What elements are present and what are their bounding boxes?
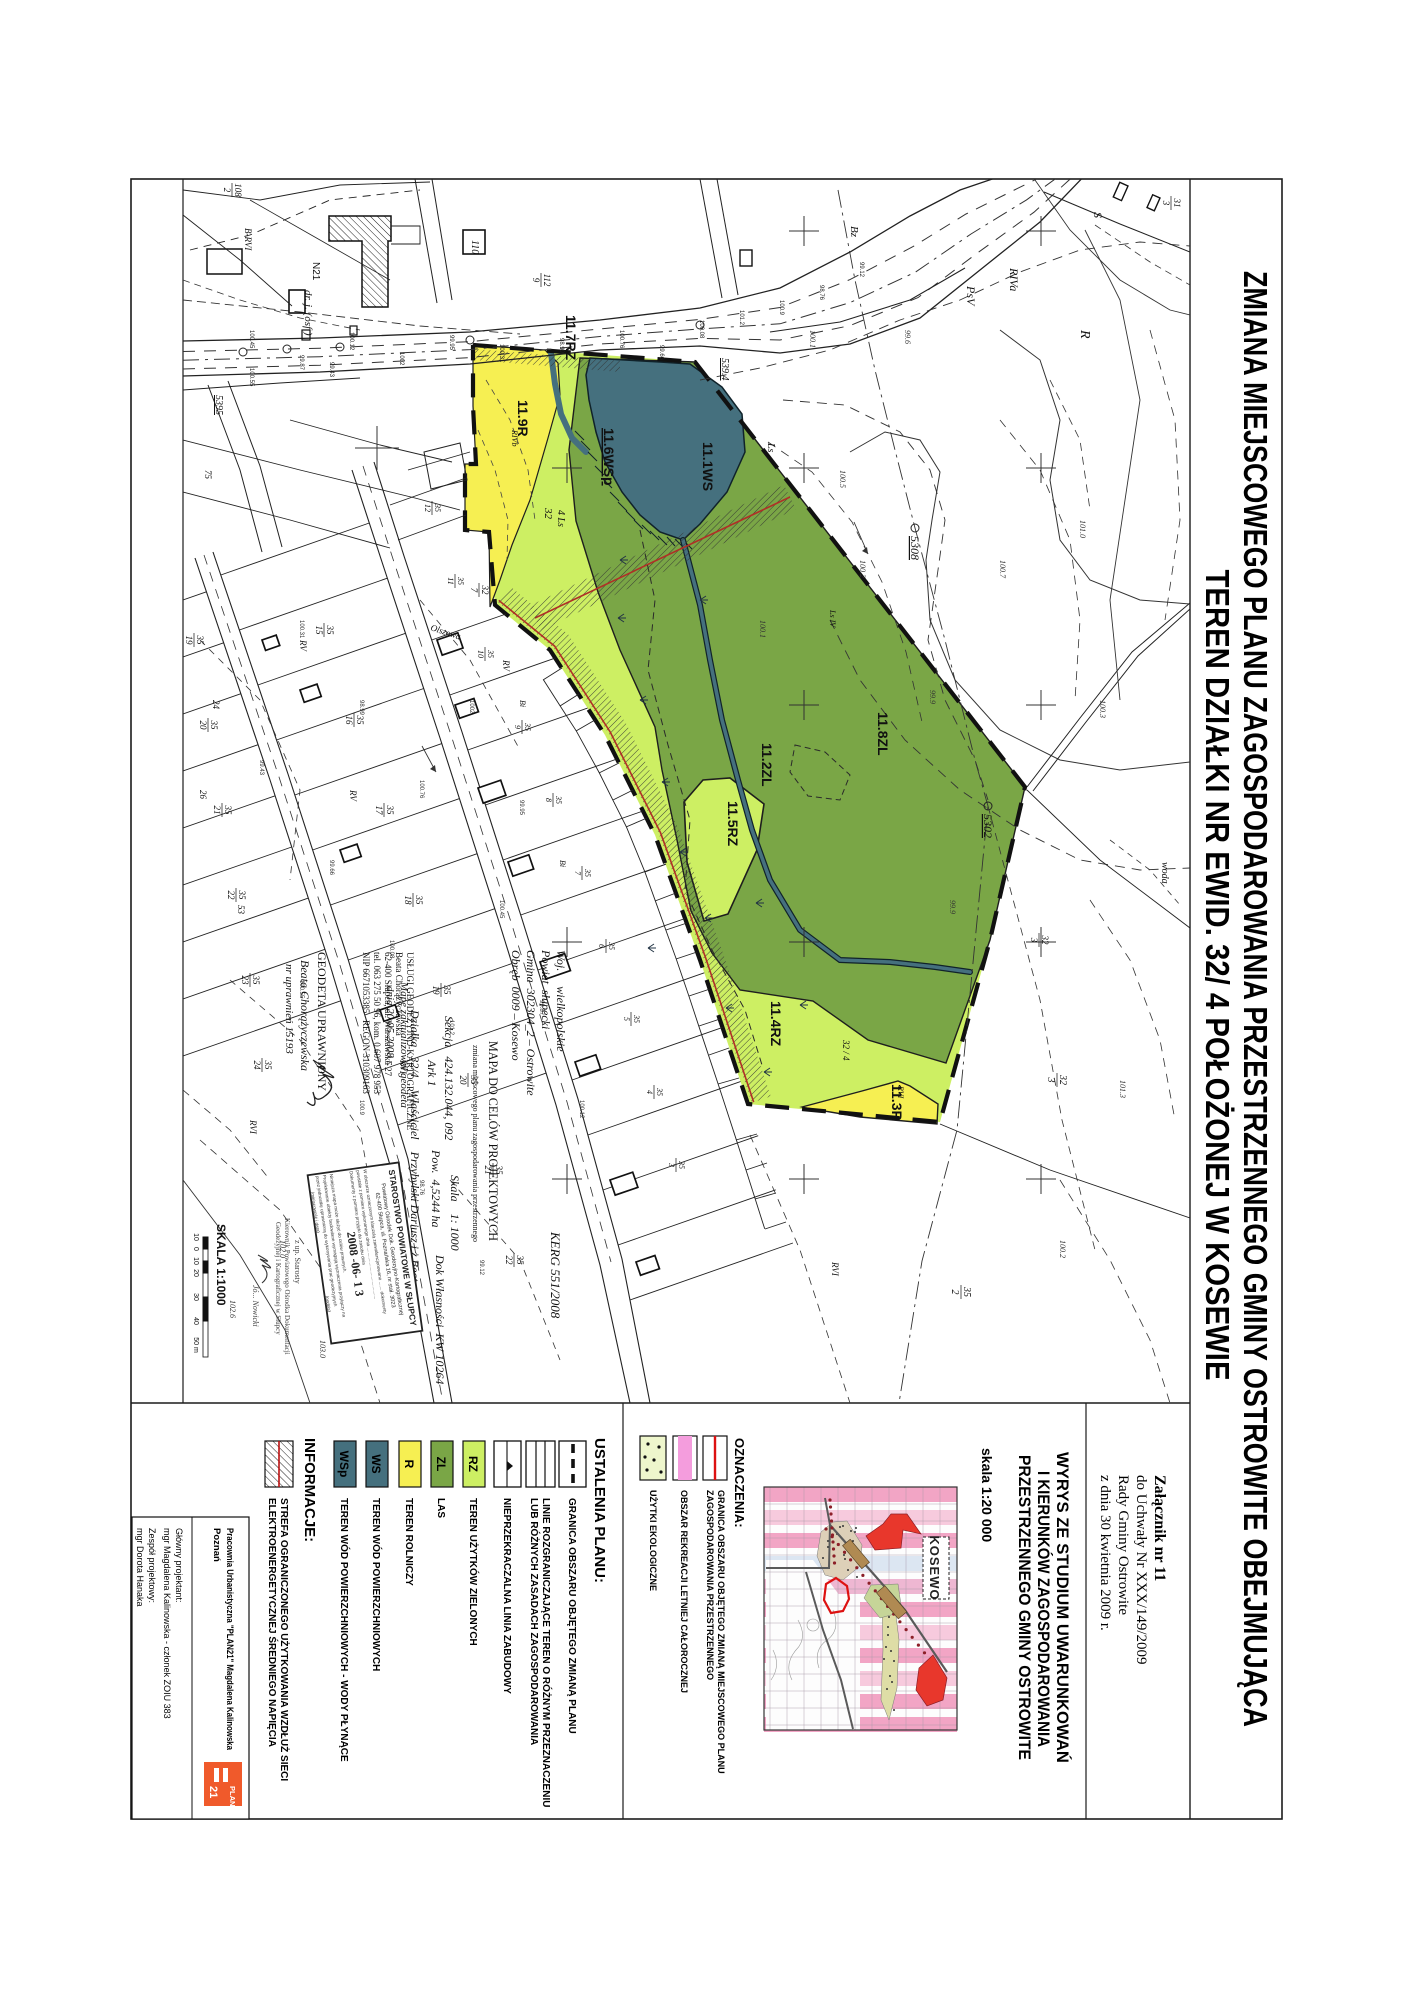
svg-text:100.08: 100.08 [698,320,704,339]
svg-text:USŁUGI GEODEZYJNO-KARTOGRAFICZ: USŁUGI GEODEZYJNO-KARTOGRAFICZNE [405,952,415,1131]
svg-text:TEREN DZIAŁKI NR EWID. 32/ 4 P: TEREN DZIAŁKI NR EWID. 32/ 4 POŁOŻONEJ W… [1199,570,1236,1381]
svg-text:I KIERUNKÓW ZAGOSPODAROWANIA: I KIERUNKÓW ZAGOSPODAROWANIA [1034,1471,1053,1747]
svg-text:LAS: LAS [435,1498,446,1518]
svg-text:9: 9 [513,725,522,729]
svg-text:11.7RZ: 11.7RZ [563,315,579,361]
svg-text:100.1: 100.1 [758,620,767,638]
svg-text:RIVa: RIVa [1007,267,1021,291]
svg-text:Dok Własności KW 10264: Dok Własności KW 10264 [433,1254,447,1384]
svg-text:N21: N21 [310,262,321,281]
svg-text:ZAGOSPODAROWANIA PRZESTRZENNEG: ZAGOSPODAROWANIA PRZESTRZENNEGO [705,1490,715,1680]
svg-text:100.9: 100.9 [358,1100,364,1116]
svg-text:tel. 063 275 50 96, kom. 0 607: tel. 063 275 50 96, kom. 0 607 978 953 [372,952,382,1094]
svg-text:SKALA 1:1000: SKALA 1:1000 [214,1224,228,1306]
svg-text:35: 35 [655,1087,664,1096]
svg-text:Pow. 4,5244 ha: Pow. 4,5244 ha [429,1149,443,1227]
svg-text:102.6: 102.6 [228,1300,237,1318]
svg-text:100.31: 100.31 [298,620,304,639]
svg-text:RV: RV [501,659,511,672]
svg-text:10: 10 [192,1257,199,1265]
svg-text:21: 21 [207,1786,219,1798]
svg-text:Główny projektant:: Główny projektant: [174,1528,184,1603]
svg-text:24: 24 [252,1061,262,1071]
svg-text:Załącznik nr 11: Załącznik nr 11 [1151,1475,1168,1581]
svg-text:Powiat słupecki: Powiat słupecki [539,949,553,1029]
svg-text:dr. j. (osf ): dr. j. (osf ) [302,290,314,336]
svg-text:ZMIANA MIEJSCOWEGO PLANU ZAGOS: ZMIANA MIEJSCOWEGO PLANU ZAGOSPODAROWANI… [1237,271,1274,1727]
svg-text:R: R [1077,329,1092,339]
svg-text:75: 75 [203,470,213,480]
svg-text:40: 40 [192,1317,199,1325]
svg-text:ZL: ZL [434,1457,448,1472]
svg-text:mgr Magdalena Kalinowska - czł: mgr Magdalena Kalinowska - członek ZOIU … [162,1528,172,1719]
svg-text:32: 32 [1040,935,1050,946]
svg-text:do Uchwały Nr XXX/149/2009: do Uchwały Nr XXX/149/2009 [1133,1475,1149,1665]
svg-text:S: S [1091,212,1105,218]
svg-text:1002: 1002 [468,700,474,714]
svg-text:20: 20 [458,1076,468,1086]
svg-text:5395: 5395 [213,395,224,415]
svg-text:11.1WS: 11.1WS [700,442,716,491]
svg-text:5302: 5302 [981,814,995,838]
svg-text:1002: 1002 [398,352,404,366]
svg-text:WYRYS ZE STUDIUM UWARUNKOWAŃ: WYRYS ZE STUDIUM UWARUNKOWAŃ [1053,1452,1072,1763]
svg-text:Zespół projektowy:: Zespół projektowy: [147,1528,157,1603]
svg-text:RVI: RVI [830,1261,840,1277]
svg-text:NIEPRZEKRACZALNA LINIA ZABUDOW: NIEPRZEKRACZALNA LINIA ZABUDOWY [501,1498,512,1694]
svg-text:3: 3 [1045,1077,1056,1083]
svg-text:zmiana miejscowego planu zagos: zmiana miejscowego planu zagospodarowani… [471,1045,481,1242]
svg-text:Sekcja 424.132.044, 092: Sekcja 424.132.044, 092 [442,1016,456,1140]
svg-text:100.9: 100.9 [778,300,784,316]
svg-text:Ark 1: Ark 1 [425,1059,439,1086]
svg-text:98.76: 98.76 [818,285,824,301]
svg-text:RZ: RZ [466,1456,480,1472]
svg-text:100.12: 100.12 [578,1100,584,1119]
svg-text:35: 35 [355,715,365,726]
svg-text:WSp: WSp [337,1451,351,1478]
svg-text:WS: WS [369,1454,383,1473]
svg-text:100.76: 100.76 [418,780,424,799]
svg-text:3: 3 [667,1162,676,1167]
svg-text:100.45: 100.45 [248,330,254,349]
svg-text:35: 35 [961,1286,972,1297]
svg-text:99.43: 99.43 [328,362,334,378]
svg-text:35: 35 [632,1014,641,1023]
svg-text:7: 7 [469,588,479,593]
svg-text:50 m: 50 m [192,1337,199,1353]
svg-text:Woj. wielkopolskie: Woj. wielkopolskie [554,950,568,1052]
svg-text:PsV: PsV [964,285,978,307]
svg-text:35: 35 [414,895,424,906]
svg-text:2: 2 [949,1290,960,1295]
svg-text:RIVb: RIVb [510,429,519,446]
svg-text:16: 16 [344,716,354,726]
svg-text:19: 19 [184,636,194,646]
svg-text:62-400 Słupca, ul. Warszawska: 62-400 Słupca, ul. Warszawska 27 [383,952,393,1077]
svg-text:3: 3 [1029,937,1039,943]
svg-text:100.7: 100.7 [998,560,1007,579]
svg-text:32: 32 [542,507,554,520]
svg-text:10: 10 [192,1233,199,1241]
svg-text:35: 35 [442,985,452,996]
svg-text:skala 1:20 000: skala 1:20 000 [979,1448,995,1542]
svg-text:0: 0 [192,1247,199,1251]
svg-text:Rady Gminy Ostrowite: Rady Gminy Ostrowite [1115,1475,1131,1615]
svg-text:100.45: 100.45 [498,900,504,919]
svg-text:99.9: 99.9 [928,690,937,704]
svg-text:Poznań: Poznań [211,1528,222,1562]
svg-text:99.95: 99.95 [518,800,524,816]
svg-text:11.5RZ: 11.5RZ [725,801,741,847]
svg-text:11.4RZ: 11.4RZ [768,1001,784,1047]
svg-text:TEREN ROLNICZY: TEREN ROLNICZY [403,1498,414,1586]
svg-text:100.76: 100.76 [618,330,624,349]
svg-text:99.9: 99.9 [948,900,957,914]
svg-text:2: 2 [222,188,232,193]
svg-text:99.43: 99.43 [258,760,264,776]
svg-text:18: 18 [403,896,413,906]
svg-text:101.2: 101.2 [738,310,744,326]
svg-text:OBSZAR REKREACJI LETNIEJ CAŁOR: OBSZAR REKREACJI LETNIEJ CAŁOROCZNEJ [679,1490,689,1693]
svg-text:15: 15 [314,626,324,636]
svg-text:z dnia 30 kwietnia 2009 r.: z dnia 30 kwietnia 2009 r. [1097,1475,1113,1631]
svg-text:KOSEWO: KOSEWO [927,1535,942,1600]
svg-text:z up. Starosty: z up. Starosty [293,1240,302,1284]
svg-text:35: 35 [251,975,261,986]
svg-text:Jó... Nowicki: Jó... Nowicki [251,1285,260,1327]
svg-text:Ls IV: Ls IV [828,609,837,628]
svg-text:99.66: 99.66 [658,345,664,361]
svg-text:99.6: 99.6 [903,330,912,344]
svg-text:mgr Dorota Hanaka: mgr Dorota Hanaka [135,1528,145,1607]
svg-text:23: 23 [240,976,250,986]
svg-text:35: 35 [325,625,335,636]
svg-text:53: 53 [236,905,246,915]
svg-text:101.3: 101.3 [1118,1080,1127,1098]
svg-text:17: 17 [374,806,384,816]
svg-text:99.12: 99.12 [478,1260,484,1276]
svg-text:101.0: 101.0 [1078,520,1087,538]
svg-text:35: 35 [433,503,442,512]
svg-text:11: 11 [446,577,455,584]
svg-text:RV: RV [348,789,358,802]
svg-text:11.2ZL: 11.2ZL [759,743,775,787]
svg-text:100.2: 100.2 [1058,1240,1067,1258]
svg-text:USTALENIA PLANU:: USTALENIA PLANU: [591,1438,608,1583]
svg-text:8: 8 [544,798,553,802]
svg-text:NIP 6671053385 REGON 3103091: NIP 6671053385 REGON 310309163 [361,952,371,1094]
svg-text:103.0: 103.0 [318,1340,327,1358]
svg-text:woda: woda [1159,862,1170,884]
svg-text:35: 35 [523,722,532,731]
svg-text:35: 35 [515,1255,525,1266]
svg-text:11.6WSp: 11.6WSp [601,428,617,486]
svg-text:Geodezyjnej i Kartograficznej: Geodezyjnej i Kartograficznej w Słupcy [274,1222,282,1335]
svg-text:100.55: 100.55 [248,368,254,387]
svg-text:19: 19 [431,986,441,996]
svg-text:3: 3 [1161,200,1171,206]
svg-text:21: 21 [212,806,222,815]
svg-text:Beata Chorążyczewska: Beata Chorążyczewska [394,952,404,1036]
svg-text:OZNACZENIA:: OZNACZENIA: [732,1438,747,1528]
svg-text:GRANICA OBSZARU OBJĘTEGO ZMIAN: GRANICA OBSZARU OBJĘTEGO ZMIANĄ MIEJSCOW… [716,1490,726,1774]
svg-text:9: 9 [531,278,541,283]
svg-text:35: 35 [195,635,205,646]
svg-text:100.31: 100.31 [498,344,504,363]
svg-text:RV: RV [298,639,308,652]
svg-text:99.95: 99.95 [448,335,454,351]
svg-text:98.99: 98.99 [358,700,364,716]
svg-text:Gmina 302304_2 – Ostrowite: Gmina 302304_2 – Ostrowite [524,950,538,1096]
svg-text:100.1: 100.1 [808,330,817,348]
svg-text:12: 12 [423,504,432,512]
svg-text:nr uprawnień 15193: nr uprawnień 15193 [283,964,295,1054]
svg-text:99.66: 99.66 [328,860,334,876]
svg-text:Obręb 0009 – Kosewo: Obręb 0009 – Kosewo [509,950,523,1061]
svg-text:99.12: 99.12 [858,262,864,278]
svg-text:5: 5 [622,1017,631,1021]
svg-text:B-RVI: B-RVI [243,228,253,251]
svg-text:Pracownia Urbanistyczna "PLAN2: Pracownia Urbanistyczna "PLAN21" Magdale… [224,1528,235,1751]
svg-text:11.8ZL: 11.8ZL [875,712,891,756]
svg-text:35: 35 [554,795,563,804]
svg-text:100.5: 100.5 [838,470,847,488]
svg-text:100.2: 100.2 [858,560,867,578]
svg-text:GRANICA OBSZARU OBJĘTEGO ZMIAN: GRANICA OBSZARU OBJĘTEGO ZMIANĄ PLANU [566,1498,577,1734]
svg-text:35: 35 [486,649,495,658]
svg-text:PLAN: PLAN [228,1786,237,1806]
svg-text:100.3: 100.3 [1098,700,1107,718]
svg-text:35: 35 [223,805,233,816]
svg-text:22: 22 [504,1256,514,1266]
svg-text:24: 24 [211,700,221,710]
svg-text:20: 20 [192,1269,199,1277]
svg-text:Ls: Ls [765,442,776,453]
svg-text:31: 31 [1172,198,1182,208]
svg-text:GEODETA UPRAWNIONY: GEODETA UPRAWNIONY [315,952,329,1091]
svg-text:Beata Chorążyczewska: Beata Chorążyczewska [298,960,312,1071]
svg-text:35: 35 [677,1160,686,1169]
svg-text:R: R [402,1460,416,1469]
svg-text:4 Ls: 4 Ls [555,510,566,527]
svg-text:35: 35 [237,890,247,901]
svg-text:Bz: Bz [848,226,860,238]
svg-text:Bi: Bi [518,700,527,707]
svg-text:INFORMACJE:: INFORMACJE: [301,1438,318,1542]
svg-text:MAPA DO CELÓW PROJEKTOWYCH: MAPA DO CELÓW PROJEKTOWYCH [486,1041,501,1241]
svg-text:35: 35 [583,868,592,877]
svg-text:35: 35 [263,1060,273,1071]
svg-text:35: 35 [385,805,395,816]
svg-text:UŻYTKI EKOLOGICZNE: UŻYTKI EKOLOGICZNE [648,1490,658,1591]
svg-text:RVI: RVI [248,1119,258,1135]
svg-text:35: 35 [209,720,219,731]
svg-text:RVI: RVI [896,1085,905,1099]
svg-text:32: 32 [480,585,490,596]
svg-text:32: 32 [1057,1074,1068,1085]
svg-text:10: 10 [476,650,485,658]
svg-text:108: 108 [233,183,243,197]
svg-text:Kierownik Powiatowego Ośrodka: Kierownik Powiatowego Ośrodka Dokumentac… [283,1218,291,1355]
svg-text:Bi: Bi [558,860,567,867]
svg-text:6: 6 [597,944,606,948]
svg-text:PRZESTRZENNEGO GMINY OSTROWITE: PRZESTRZENNEGO GMINY OSTROWITE [1015,1455,1034,1760]
svg-text:KERG 551/2008: KERG 551/2008 [548,1231,563,1319]
svg-text:112: 112 [542,274,552,287]
svg-text:35: 35 [456,576,465,585]
svg-text:110: 110 [469,240,480,254]
svg-text:30: 30 [192,1293,199,1301]
svg-text:22: 22 [226,891,236,901]
svg-text:4: 4 [645,1090,654,1094]
svg-text:100.12: 100.12 [348,332,354,351]
svg-text:5308: 5308 [908,536,922,560]
svg-text:20: 20 [198,721,208,731]
svg-text:35: 35 [607,941,616,950]
svg-text:99.87: 99.87 [298,355,304,371]
svg-text:Skala 1: 1000: Skala 1: 1000 [448,1175,462,1251]
svg-text:539.4: 539.4 [719,358,730,381]
svg-text:32 / 4: 32 / 4 [841,1039,851,1061]
svg-text:26: 26 [198,790,208,800]
